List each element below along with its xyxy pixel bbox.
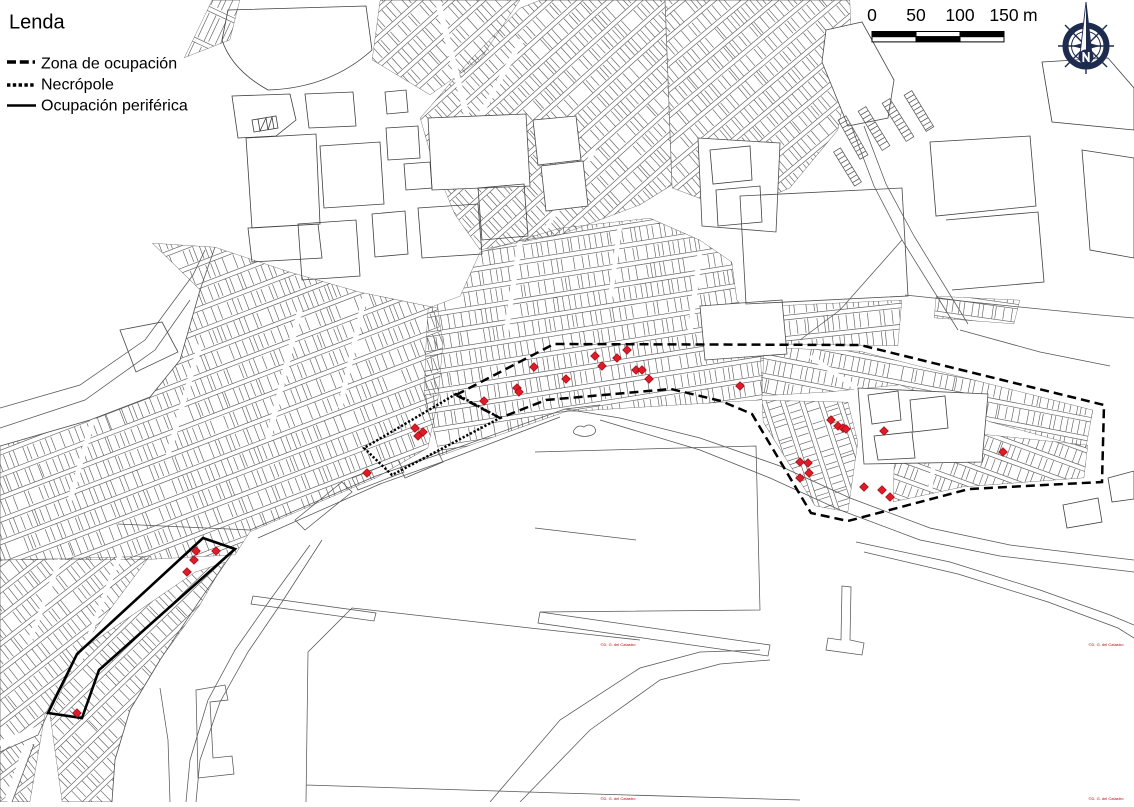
svg-text:150: 150 [989, 5, 1018, 25]
svg-text:Ocupación periférica: Ocupación periférica [41, 98, 188, 115]
svg-text:100: 100 [945, 5, 974, 25]
svg-text:Lenda: Lenda [9, 12, 65, 34]
svg-text:Necrópole: Necrópole [41, 77, 114, 94]
svg-text:Zona de ocupación: Zona de ocupación [41, 56, 177, 73]
svg-text:50: 50 [906, 5, 926, 25]
svg-text:©D. G. del Catastro: ©D. G. del Catastro [601, 796, 637, 801]
svg-text:m: m [1023, 5, 1038, 25]
svg-text:©D. G. del Catastro: ©D. G. del Catastro [1089, 642, 1125, 647]
svg-text:©D. G. del Catastro: ©D. G. del Catastro [1089, 796, 1125, 801]
svg-text:0: 0 [867, 5, 877, 25]
svg-text:©D. G. del Catastro: ©D. G. del Catastro [601, 642, 637, 647]
